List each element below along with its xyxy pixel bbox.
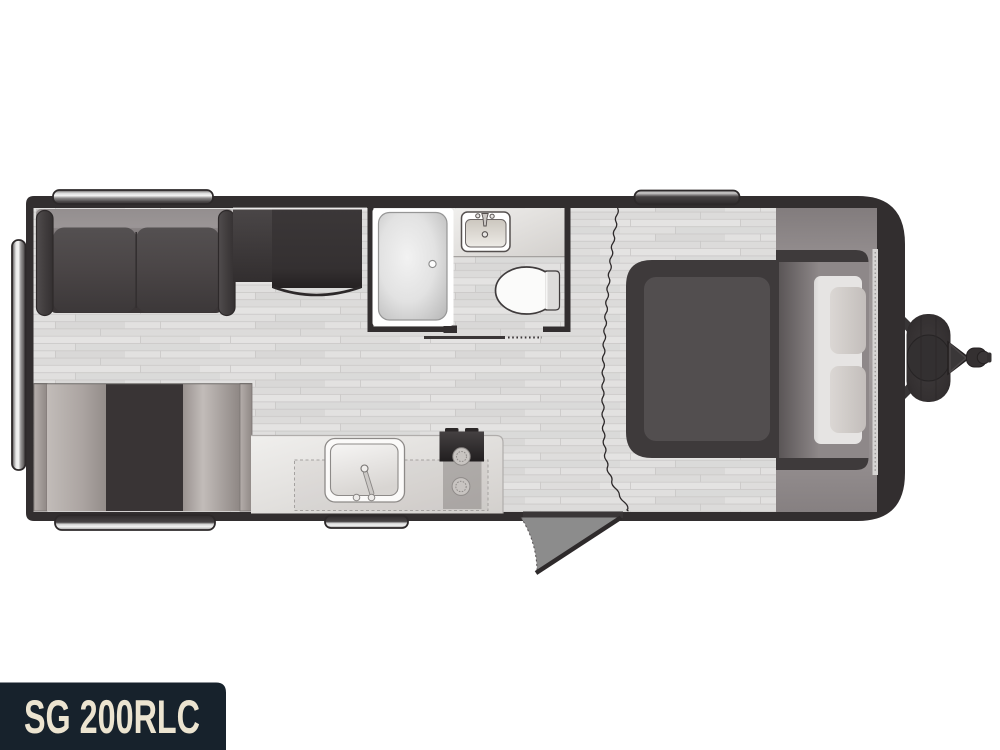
svg-text:SG 200RLC: SG 200RLC: [24, 690, 200, 743]
